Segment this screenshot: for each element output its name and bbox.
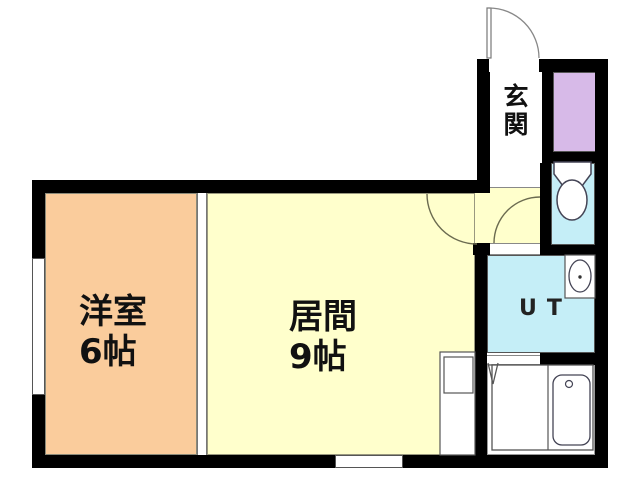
wall-bottom-left bbox=[32, 455, 335, 468]
door-opening-entry bbox=[489, 59, 539, 72]
wall-closet-bottom bbox=[542, 152, 608, 163]
toilet-room-floor bbox=[551, 163, 595, 245]
window-west bbox=[32, 258, 45, 395]
living-room-label: 居間9帖 bbox=[289, 297, 357, 377]
western-room-name: 洋室 bbox=[79, 292, 147, 332]
wall-bottom-right bbox=[403, 455, 608, 468]
wall-closet-left bbox=[542, 72, 553, 163]
wall-left-upper bbox=[32, 180, 45, 258]
wall-toilet-bottom bbox=[540, 245, 608, 255]
entrance-label: 玄関 bbox=[501, 83, 528, 139]
wall-top bbox=[32, 180, 490, 193]
door-opening-bathroom bbox=[487, 355, 540, 365]
western-room-label: 洋室6帖 bbox=[79, 292, 147, 372]
living-room-name: 居間 bbox=[289, 297, 357, 337]
window-south bbox=[335, 455, 403, 468]
door-opening-hall-utility bbox=[490, 243, 540, 255]
wall-entrance-left bbox=[477, 59, 490, 193]
wall-living-right bbox=[475, 243, 487, 455]
room-partition bbox=[197, 193, 207, 455]
living-room-doorway bbox=[475, 193, 487, 245]
floor-plan: 洋室6帖 居間9帖 玄関 UT bbox=[0, 0, 640, 480]
bathroom-floor bbox=[487, 365, 595, 455]
wall-toilet-left bbox=[540, 163, 551, 255]
closet-floor bbox=[553, 72, 597, 152]
hallway-floor bbox=[487, 187, 540, 245]
western-room-size: 6帖 bbox=[79, 332, 137, 372]
wall-hall-stub bbox=[473, 243, 490, 255]
living-room-size: 9帖 bbox=[289, 337, 347, 377]
entry-door-arc bbox=[487, 8, 539, 58]
wall-right bbox=[595, 59, 608, 468]
wall-bath-top bbox=[540, 353, 598, 365]
wall-entry-top bbox=[539, 59, 608, 72]
utility-room-label: UT bbox=[519, 296, 572, 321]
